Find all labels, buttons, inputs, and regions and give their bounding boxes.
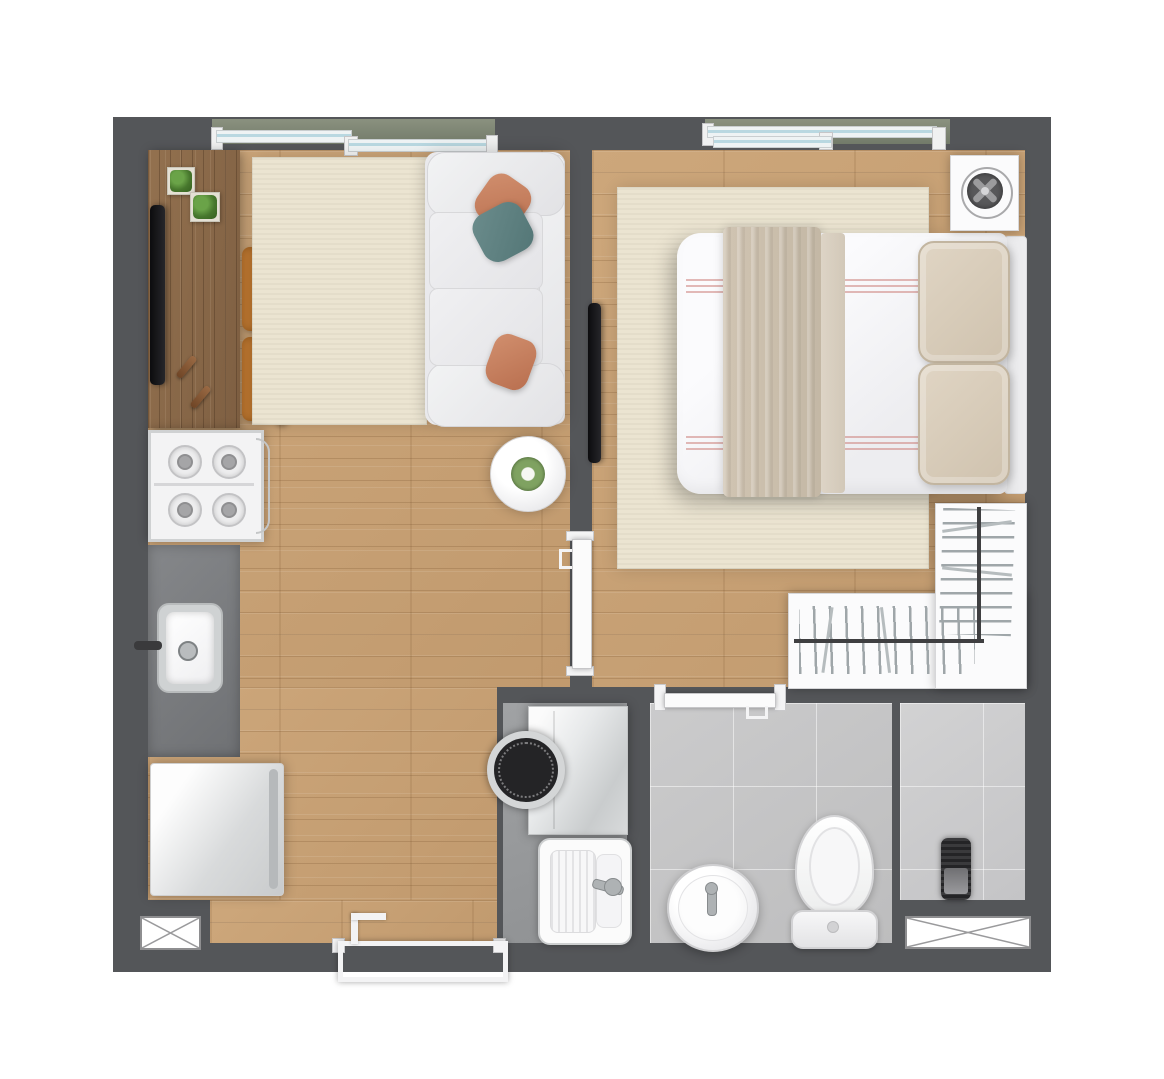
heater-band [944, 868, 968, 894]
burner-icon [212, 493, 246, 527]
washer-drum [487, 731, 565, 809]
washbasin-faucet-knob [705, 882, 718, 895]
bedroom-window-pane [713, 136, 832, 148]
bed-pillow [918, 363, 1010, 485]
tv [150, 205, 165, 385]
fan-body [967, 173, 1003, 209]
fridge-handle [269, 769, 278, 889]
floor-plan [0, 0, 1164, 1079]
service-shaft [905, 916, 1031, 949]
table-plant-icon [511, 457, 545, 491]
burner-icon [168, 493, 202, 527]
potted-plant-icon [190, 192, 220, 222]
refrigerator [150, 763, 284, 896]
blanket-fold [821, 233, 845, 493]
wardrobe-rail [977, 507, 981, 641]
coffee-table [490, 436, 566, 512]
water-heater [941, 838, 971, 900]
living-area-rug [252, 157, 427, 425]
toilet-bowl [795, 815, 874, 917]
burner-icon [212, 445, 246, 479]
potted-plant-icon [167, 167, 195, 195]
fan-hub [981, 187, 989, 195]
bed-pillow [918, 241, 1010, 363]
faucet-icon [134, 641, 162, 650]
cooktop-divider [154, 483, 254, 486]
burner-icon [168, 445, 202, 479]
oven-door-arc [256, 438, 270, 534]
tank-faucet-knob [604, 878, 622, 896]
bedroom-door-handle [559, 549, 572, 569]
bathroom-door-handle [746, 706, 768, 719]
entry-door-handle [351, 913, 386, 920]
service-shaft [140, 916, 201, 950]
wardrobe-rail [794, 639, 984, 643]
cooktop [148, 430, 264, 542]
tank-ridges [550, 850, 596, 933]
entry-door [338, 941, 508, 982]
sink-drain-icon [178, 641, 198, 661]
bedroom-door [572, 539, 592, 669]
toilet-seat [809, 827, 860, 906]
toilet-flush-button [827, 921, 839, 933]
living-window-pane [216, 130, 352, 143]
blanket-runner [723, 227, 821, 497]
living-window-pane [348, 139, 492, 152]
window-frame-cap [932, 127, 946, 150]
bedroom-wall-tv [588, 303, 601, 463]
